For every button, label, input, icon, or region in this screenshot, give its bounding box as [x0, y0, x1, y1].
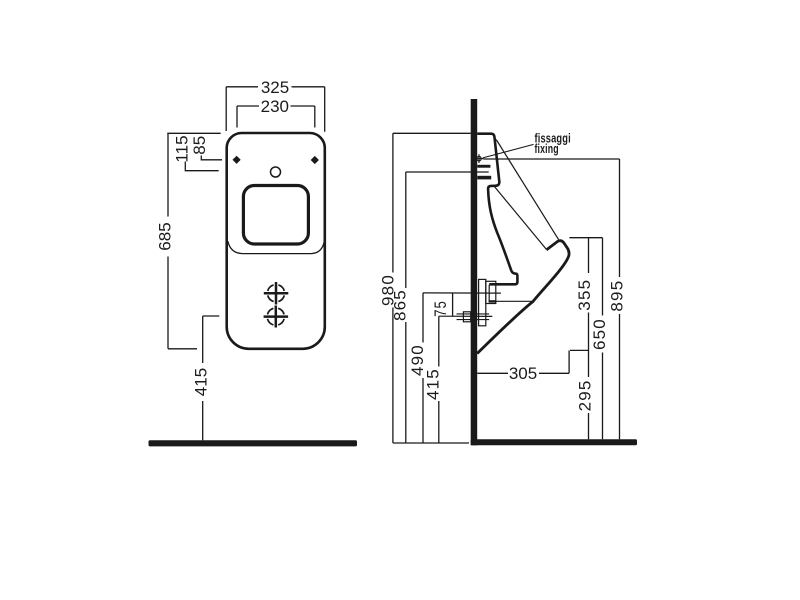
svg-text:85: 85: [190, 136, 209, 155]
svg-text:355: 355: [575, 279, 594, 311]
svg-text:305: 305: [509, 364, 537, 383]
svg-text:230: 230: [261, 97, 289, 116]
svg-text:415: 415: [191, 368, 210, 396]
svg-text:415: 415: [424, 368, 443, 400]
svg-text:fixing: fixing: [535, 142, 559, 156]
svg-text:295: 295: [575, 379, 594, 411]
svg-text:650: 650: [590, 318, 609, 350]
svg-text:895: 895: [608, 280, 627, 312]
svg-text:325: 325: [261, 78, 289, 97]
svg-text:685: 685: [155, 222, 174, 250]
svg-text:75: 75: [431, 300, 450, 317]
svg-text:865: 865: [391, 289, 410, 321]
svg-text:115: 115: [172, 135, 191, 162]
